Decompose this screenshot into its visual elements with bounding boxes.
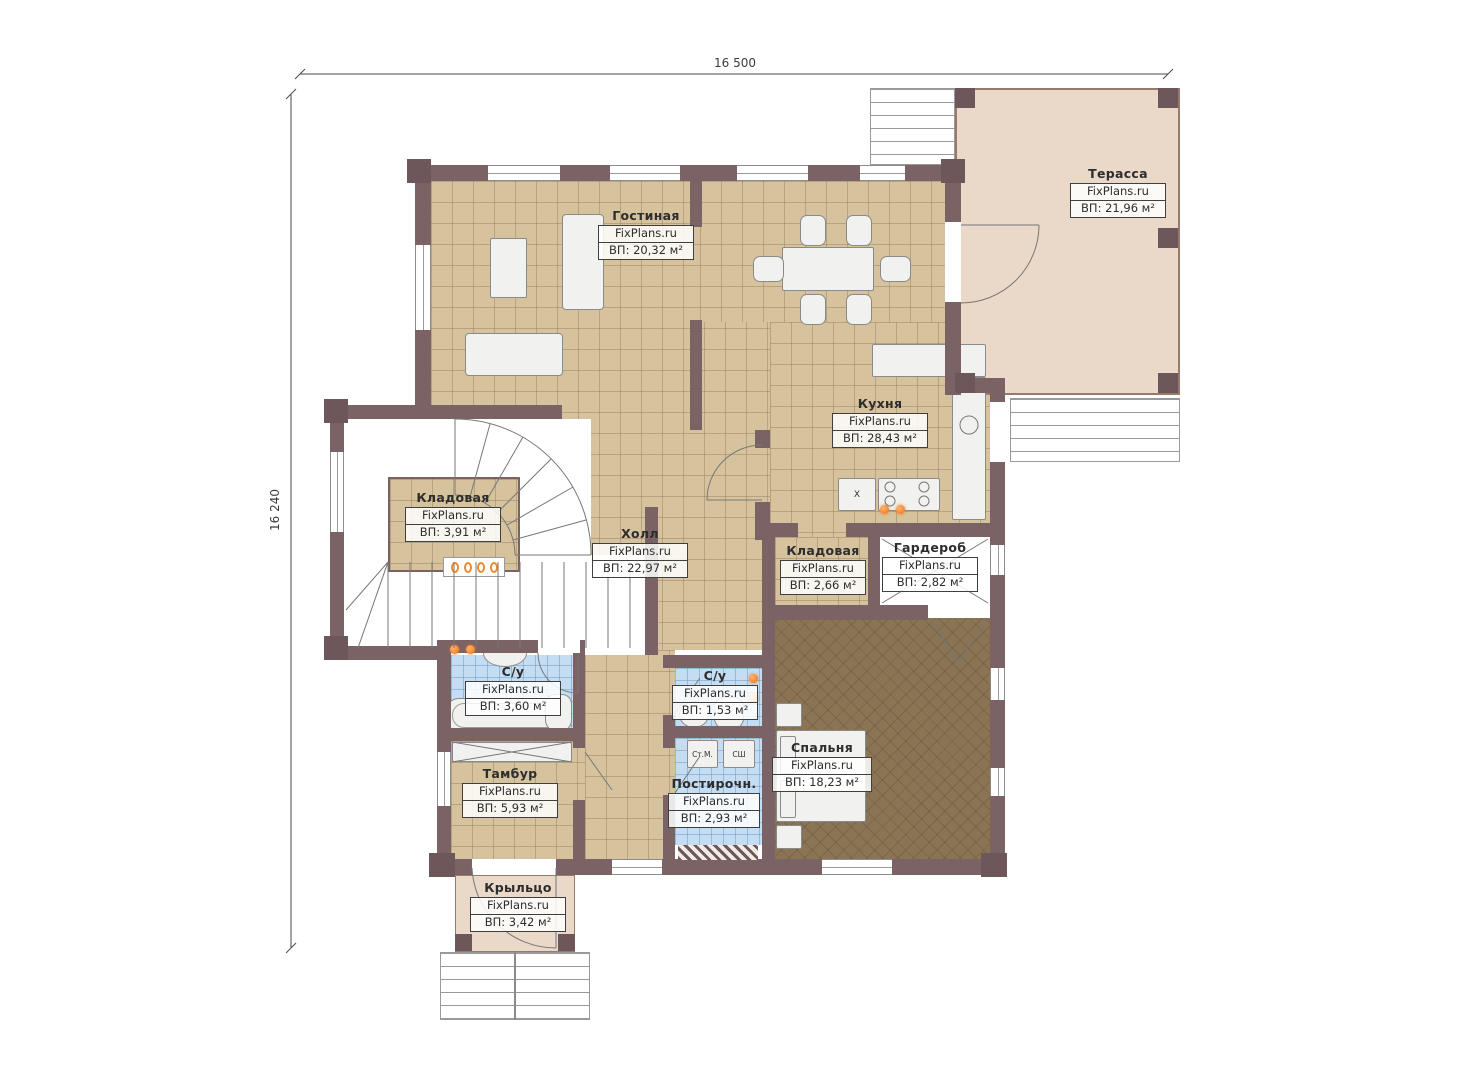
kitchen-counter-right bbox=[952, 377, 986, 520]
room-area: ВП: 3,91 м² bbox=[405, 524, 501, 542]
doormat-grate bbox=[678, 845, 758, 860]
tambour-closet bbox=[452, 742, 572, 762]
dimension-height: 16 240 bbox=[268, 455, 282, 565]
room-name: Гостиная bbox=[598, 208, 694, 223]
terrace-post bbox=[1158, 88, 1178, 108]
room-name: Спальня bbox=[772, 740, 872, 755]
pilaster bbox=[324, 636, 348, 660]
porch-post bbox=[455, 934, 472, 951]
washing-machine-label: Ст.М. bbox=[687, 740, 718, 768]
room-name: Кладовая bbox=[405, 490, 501, 505]
wall-living-dining-b bbox=[690, 320, 702, 430]
watermark: FixPlans.ru bbox=[465, 681, 561, 699]
wall-annex-left bbox=[330, 405, 344, 660]
terrace-post bbox=[955, 373, 975, 393]
room-name: Кухня bbox=[832, 396, 928, 411]
watermark: FixPlans.ru bbox=[832, 413, 928, 431]
label-wardrobe: Гардероб FixPlans.ru ВП: 2,82 м² bbox=[882, 540, 978, 592]
window bbox=[415, 245, 431, 330]
room-area: ВП: 3,42 м² bbox=[470, 914, 566, 932]
pilaster bbox=[407, 159, 431, 183]
watermark: FixPlans.ru bbox=[598, 225, 694, 243]
wall-storage2-top-b bbox=[846, 523, 990, 537]
watermark: FixPlans.ru bbox=[405, 507, 501, 525]
room-area: ВП: 5,93 м² bbox=[462, 800, 558, 818]
dimension-width: 16 500 bbox=[690, 56, 780, 70]
dining-chair bbox=[753, 256, 784, 282]
pilaster bbox=[941, 159, 965, 183]
dining-chair bbox=[800, 294, 826, 325]
room-name: Терасса bbox=[1070, 166, 1166, 181]
nightstand bbox=[776, 703, 802, 727]
watermark: FixPlans.ru bbox=[470, 897, 566, 915]
exterior-ramp-right bbox=[1010, 398, 1180, 462]
dining-chair bbox=[846, 215, 872, 246]
watermark: FixPlans.ru bbox=[1070, 183, 1166, 201]
room-area: ВП: 2,82 м² bbox=[882, 574, 978, 592]
room-area: ВП: 20,32 м² bbox=[598, 242, 694, 260]
window bbox=[990, 768, 1005, 796]
nightstand bbox=[776, 825, 802, 849]
wall-annex-top bbox=[330, 405, 562, 419]
radiator-dot bbox=[880, 505, 889, 514]
dining-table bbox=[782, 247, 874, 291]
room-name: Крыльцо bbox=[470, 880, 566, 895]
radiator-dot bbox=[896, 505, 905, 514]
room-area: ВП: 28,43 м² bbox=[832, 430, 928, 448]
terrace-post bbox=[955, 88, 975, 108]
room-name: Кладовая bbox=[780, 543, 866, 558]
watermark: FixPlans.ru bbox=[462, 783, 558, 801]
radiator-dot bbox=[450, 645, 459, 654]
label-porch: Крыльцо FixPlans.ru ВП: 3,42 м² bbox=[470, 880, 566, 932]
label-bathroom-1: С/у FixPlans.ru ВП: 3,60 м² bbox=[465, 664, 561, 716]
drying-cabinet-label: СШ bbox=[723, 740, 755, 768]
room-area: ВП: 1,53 м² bbox=[672, 702, 758, 720]
floor-corridor bbox=[585, 650, 675, 860]
pilaster bbox=[429, 853, 455, 877]
terrace-post bbox=[1158, 373, 1178, 393]
label-living: Гостиная FixPlans.ru ВП: 20,32 м² bbox=[598, 208, 694, 260]
label-tambour: Тамбур FixPlans.ru ВП: 5,93 м² bbox=[462, 766, 558, 818]
label-laundry: Постирочн. FixPlans.ru ВП: 2,93 м² bbox=[668, 776, 760, 828]
room-area: ВП: 18,23 м² bbox=[772, 774, 872, 792]
sofa bbox=[465, 333, 563, 376]
label-hall: Холл FixPlans.ru ВП: 22,97 м² bbox=[592, 526, 688, 578]
coffee-table bbox=[490, 238, 527, 298]
wall-bedroom-top bbox=[762, 605, 928, 620]
wall-bathroom2-laundry bbox=[675, 726, 762, 738]
label-storage-2: Кладовая FixPlans.ru ВП: 2,66 м² bbox=[780, 543, 866, 595]
window bbox=[330, 452, 344, 532]
window bbox=[488, 165, 560, 181]
wall-terrace-kitchen bbox=[945, 378, 1005, 393]
wall-bathroom2-top bbox=[663, 655, 762, 668]
room-area: ВП: 21,96 м² bbox=[1070, 200, 1166, 218]
wall-corridor-right-a bbox=[663, 715, 675, 748]
pilaster bbox=[981, 853, 1007, 877]
watermark: FixPlans.ru bbox=[780, 560, 866, 578]
label-bedroom: Спальня FixPlans.ru ВП: 18,23 м² bbox=[772, 740, 872, 792]
window bbox=[437, 752, 451, 806]
porch-stairs-divider bbox=[514, 952, 516, 1020]
room-name: Холл bbox=[592, 526, 688, 541]
door-opening-kitchen-exit bbox=[990, 402, 1005, 462]
room-name: Гардероб bbox=[882, 540, 978, 555]
window bbox=[612, 859, 662, 875]
wall-kitchen-hall-a bbox=[755, 430, 770, 448]
radiator-dot bbox=[466, 645, 475, 654]
wall-storage2-divider bbox=[868, 537, 880, 605]
window bbox=[860, 165, 905, 181]
floor-terrace bbox=[955, 88, 1180, 395]
label-terrace: Терасса FixPlans.ru ВП: 21,96 м² bbox=[1070, 166, 1166, 218]
room-area: ВП: 2,93 м² bbox=[668, 810, 760, 828]
dining-chair bbox=[846, 294, 872, 325]
label-kitchen: Кухня FixPlans.ru ВП: 28,43 м² bbox=[832, 396, 928, 448]
dining-chair bbox=[880, 256, 911, 282]
fridge-label: Х bbox=[838, 478, 876, 511]
room-name: Тамбур bbox=[462, 766, 558, 781]
room-area: ВП: 3,60 м² bbox=[465, 698, 561, 716]
wall-corridor-left-b bbox=[573, 800, 585, 860]
wall-storage2-left bbox=[762, 537, 775, 860]
window bbox=[990, 668, 1005, 700]
window bbox=[737, 165, 808, 181]
watermark: FixPlans.ru bbox=[672, 685, 758, 703]
wall-bathroom1-bottom bbox=[437, 728, 585, 741]
room-name: С/у bbox=[465, 664, 561, 679]
watermark: FixPlans.ru bbox=[668, 793, 760, 811]
watermark: FixPlans.ru bbox=[882, 557, 978, 575]
watermark: FixPlans.ru bbox=[772, 757, 872, 775]
wall-corridor-left-a bbox=[573, 653, 585, 748]
pilaster bbox=[324, 399, 348, 423]
window bbox=[990, 545, 1005, 575]
room-area: ВП: 22,97 м² bbox=[592, 560, 688, 578]
exterior-stairs-top bbox=[870, 88, 955, 165]
terrace-post bbox=[1158, 228, 1178, 248]
wall-storage2-top-a bbox=[762, 523, 798, 537]
label-bathroom-2: С/у FixPlans.ru ВП: 1,53 м² bbox=[672, 668, 758, 720]
dining-chair bbox=[800, 215, 826, 246]
room-name: Постирочн. bbox=[668, 776, 760, 791]
door-opening-entrance bbox=[472, 859, 556, 875]
wall-bathroom1-top-b bbox=[580, 640, 585, 653]
window bbox=[822, 859, 892, 875]
label-storage-1: Кладовая FixPlans.ru ВП: 3,91 м² bbox=[405, 490, 501, 542]
watermark: FixPlans.ru bbox=[592, 543, 688, 561]
floor-plan: Ст.М. СШ Х bbox=[0, 0, 1474, 1080]
room-name: С/у bbox=[672, 668, 758, 683]
room-area: ВП: 2,66 м² bbox=[780, 577, 866, 595]
porch-post bbox=[558, 934, 575, 951]
door-opening-terrace bbox=[945, 222, 961, 302]
storage-radiator bbox=[443, 557, 505, 577]
window bbox=[610, 165, 680, 181]
